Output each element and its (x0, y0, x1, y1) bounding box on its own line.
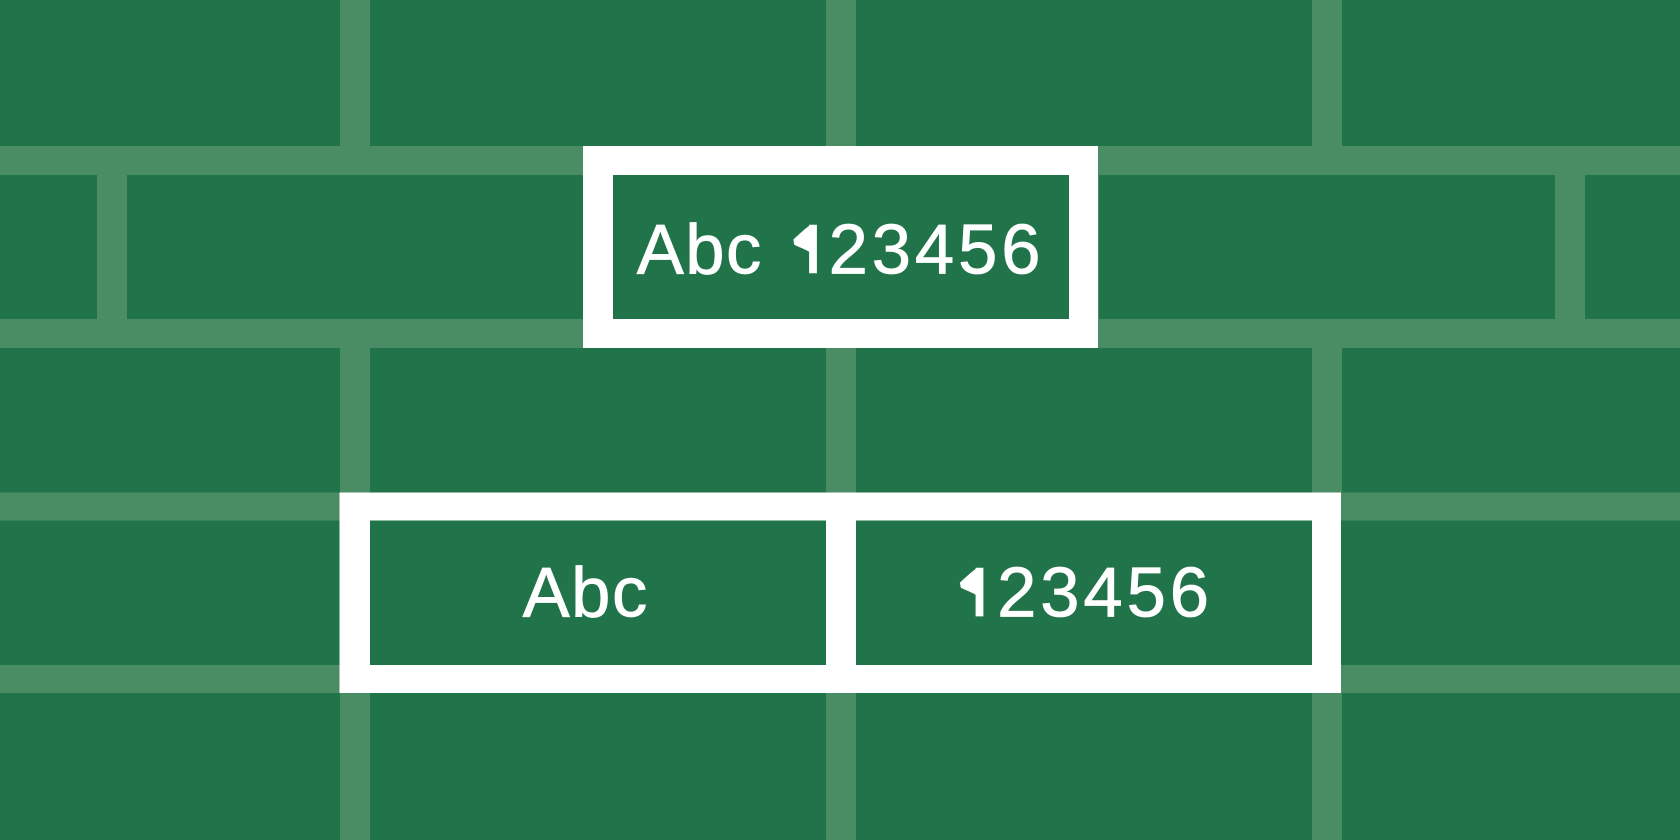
svg-text:Abc: Abc (637, 209, 763, 288)
svg-text:Abc: Abc (523, 552, 649, 631)
svg-text:23456: 23456 (829, 209, 1045, 288)
svg-text:23456: 23456 (997, 552, 1213, 631)
